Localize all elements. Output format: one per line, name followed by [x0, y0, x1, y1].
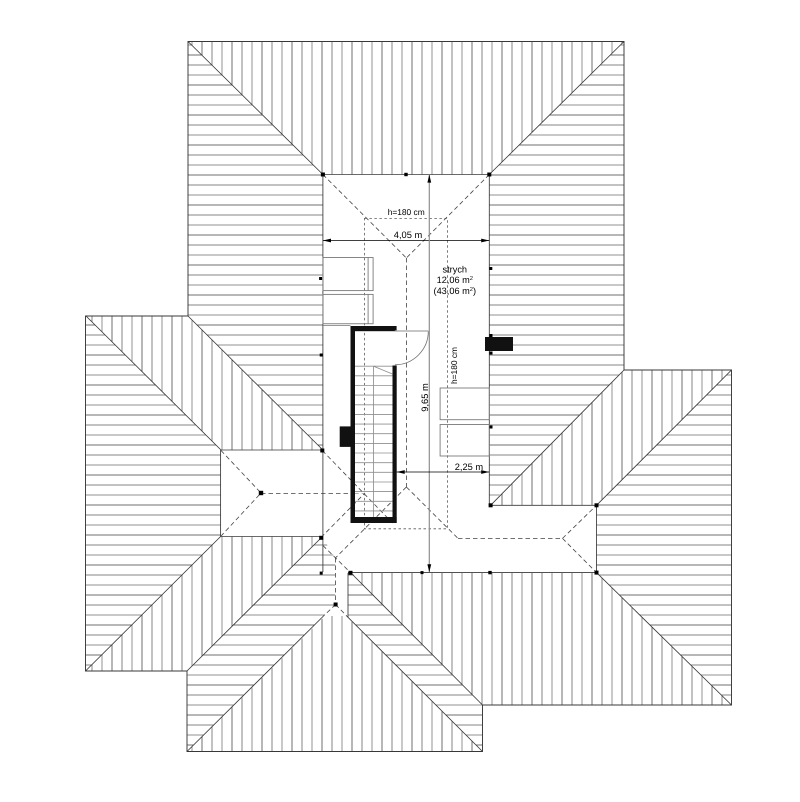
svg-text:12,06 m2: 12,06 m2 — [437, 275, 473, 285]
svg-text:h=180 cm: h=180 cm — [388, 207, 425, 217]
svg-text:h=180 cm: h=180 cm — [449, 347, 459, 384]
svg-text:2,25 m: 2,25 m — [455, 462, 484, 472]
svg-text:4,05 m: 4,05 m — [394, 230, 423, 240]
svg-text:(43,06 m2): (43,06 m2) — [434, 286, 477, 296]
svg-text:9,65 m: 9,65 m — [420, 383, 430, 412]
svg-text:strych: strych — [443, 265, 468, 275]
